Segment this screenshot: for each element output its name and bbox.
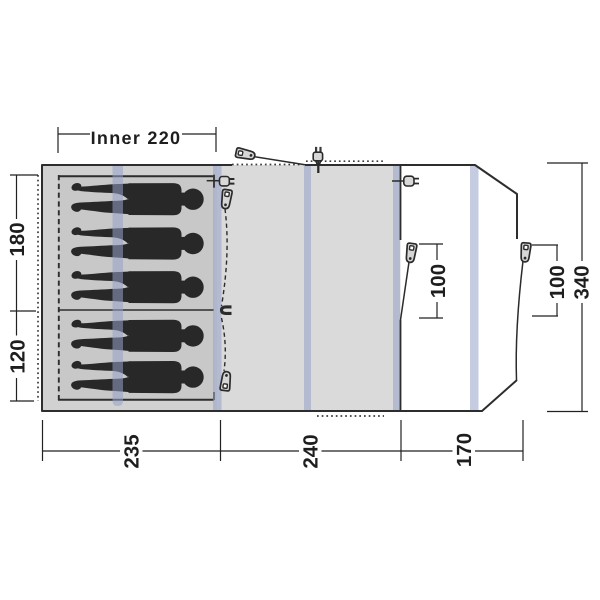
svg-text:340: 340 — [571, 265, 594, 299]
svg-text:180: 180 — [6, 222, 29, 256]
svg-text:120: 120 — [7, 339, 30, 373]
svg-text:100: 100 — [546, 265, 569, 299]
svg-text:170: 170 — [453, 433, 476, 467]
svg-text:100: 100 — [427, 264, 450, 298]
svg-text:235: 235 — [121, 434, 144, 468]
svg-text:240: 240 — [300, 434, 323, 468]
svg-text:Inner 220: Inner 220 — [91, 128, 182, 148]
